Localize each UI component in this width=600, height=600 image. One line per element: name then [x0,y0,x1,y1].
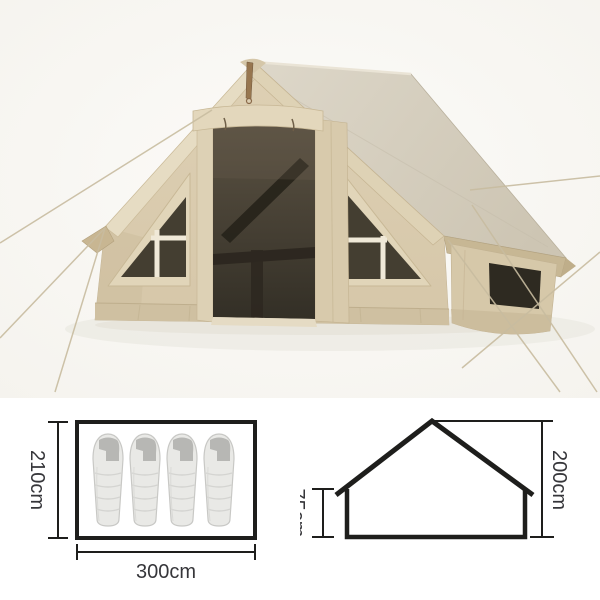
profile-roof [336,421,533,495]
product-image: 210cm 300cm 75cm 200cm [0,0,600,600]
width-label: 300cm [136,561,196,583]
depth-label: 210cm [26,450,48,510]
door-frame-left [197,117,213,322]
width-dimension-line [77,544,255,560]
floor-plan-diagram: 210cm 300cm [0,390,300,600]
side-profile-diagram: 75cm 200cm [300,390,600,600]
sleeping-bag-icon [204,434,234,526]
profile-walls-floor [347,489,525,537]
sleeping-bag-icon [167,434,197,526]
sleeping-bag-icon [130,434,160,526]
total-height-dimension-line [432,421,554,537]
total-height-label: 200cm [548,450,570,510]
wall-height-label: 75cm [300,489,308,538]
depth-dimension-line [48,422,68,538]
tent-door [193,105,349,327]
wall-height-dimension-line [312,489,334,537]
tent-photo [0,0,600,398]
sleeping-bag-icon [93,434,123,526]
